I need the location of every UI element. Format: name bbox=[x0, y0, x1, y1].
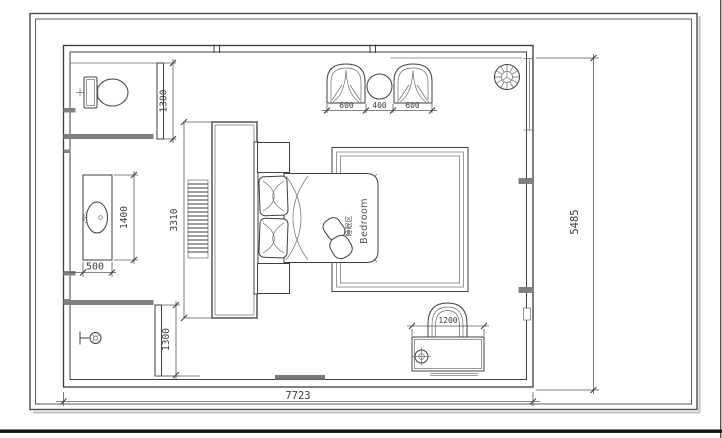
nightstand-bottom bbox=[258, 264, 290, 294]
pillow-top bbox=[259, 176, 288, 216]
dim-desk: 1200 bbox=[407, 316, 489, 336]
dim-label-armchair-left: 600 bbox=[339, 101, 354, 110]
floor-plan-drawing: 1300 1400 500 bbox=[0, 0, 722, 438]
toilet-zone: 1300 bbox=[64, 59, 177, 143]
dim-label-vanity-length: 1400 bbox=[119, 206, 130, 229]
dim-label-shower-zone: 1300 bbox=[161, 328, 172, 351]
dim-overall-height: 5485 bbox=[536, 54, 599, 394]
shower-zone: 1300 bbox=[64, 300, 201, 379]
dim-label-desk: 1200 bbox=[438, 316, 457, 325]
tv-cabinet-outline bbox=[212, 122, 257, 318]
armchair-right bbox=[394, 64, 432, 103]
door-jamb-right bbox=[524, 308, 531, 320]
dim-label-toilet-zone: 1300 bbox=[159, 89, 170, 112]
dim-label-overall-height: 5485 bbox=[569, 209, 581, 234]
bed-group: 睡眠区 Bedroom bbox=[254, 142, 378, 294]
desk-area: 1200 bbox=[407, 303, 489, 376]
dim-label-overall-width: 7723 bbox=[285, 390, 310, 402]
vanity-zone: 1400 500 bbox=[68, 171, 138, 277]
dim-label-side-table: 400 bbox=[372, 101, 387, 110]
dim-vanity-length: 1400 bbox=[114, 171, 138, 264]
dim-label-armchair-right: 600 bbox=[405, 101, 420, 110]
shower-head-icon bbox=[80, 332, 101, 345]
wall-stub-right-upper bbox=[519, 178, 534, 184]
ceiling-fan-icon bbox=[495, 65, 520, 90]
dim-ext-lines bbox=[412, 329, 484, 336]
page-edge-bottom-bar bbox=[0, 430, 722, 433]
wall-stub-left-3 bbox=[64, 271, 76, 276]
dim-ext-lines bbox=[536, 58, 599, 390]
floor-plan-canvas: 1300 1400 500 bbox=[0, 0, 722, 438]
nightstand-top bbox=[258, 143, 290, 173]
room-label-en: Bedroom bbox=[359, 198, 370, 244]
window-right bbox=[524, 59, 534, 131]
dim-label-vanity-depth: 500 bbox=[86, 262, 104, 273]
tv-cabinet bbox=[212, 122, 257, 318]
dim-label-cabinet: 3310 bbox=[169, 208, 180, 231]
toilet-icon bbox=[76, 77, 128, 108]
shower-zone-door-track bbox=[64, 300, 154, 305]
threshold-bottom bbox=[275, 375, 325, 380]
toilet-zone-door-track bbox=[64, 134, 154, 139]
wall-stub-left-1 bbox=[64, 108, 76, 113]
armchair-left bbox=[327, 64, 365, 103]
seating-area: 600 400 600 bbox=[322, 64, 437, 114]
side-table bbox=[367, 74, 392, 99]
wall-stub-right-lower bbox=[519, 287, 534, 293]
desk-base-line bbox=[430, 374, 478, 376]
pillow-bottom bbox=[259, 218, 288, 258]
dim-shower-zone: 1300 bbox=[161, 301, 180, 379]
wall-stub-left-2 bbox=[64, 150, 71, 154]
slatted-panel bbox=[188, 180, 208, 258]
room-label-cn: 睡眠区 bbox=[345, 216, 353, 237]
